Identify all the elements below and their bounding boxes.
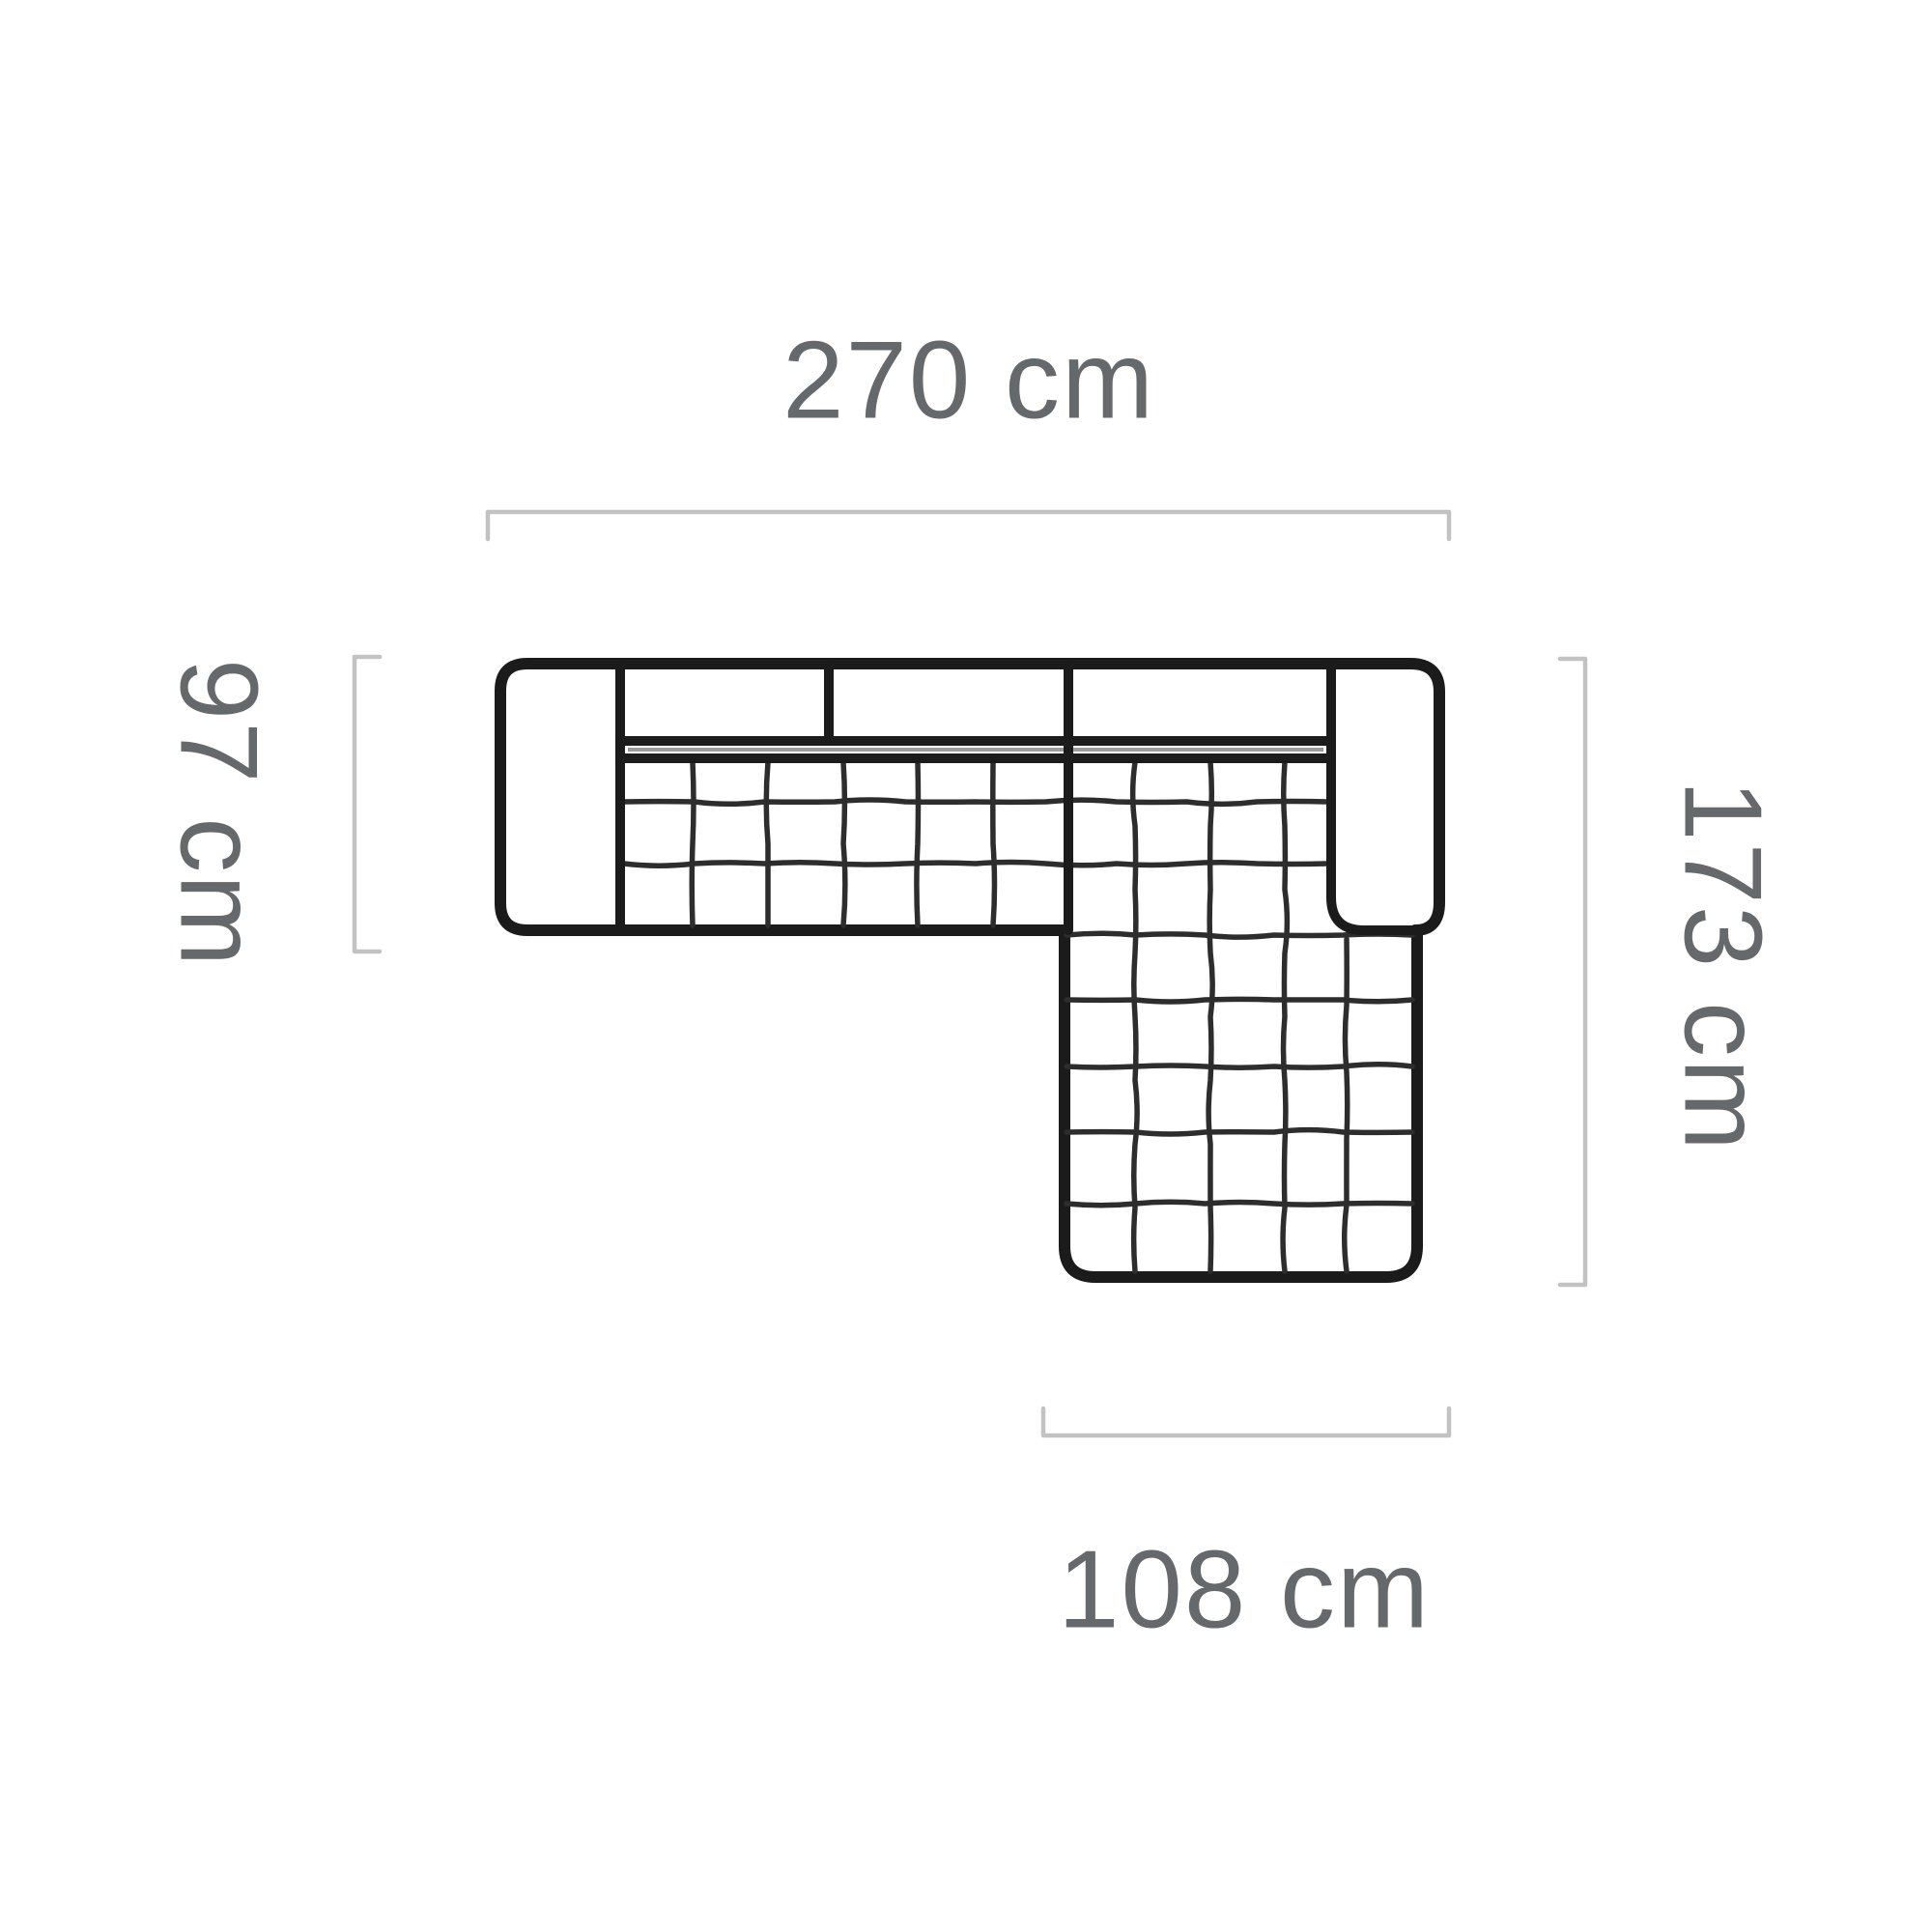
dimension-label-top-width: 270 cm bbox=[782, 320, 1155, 442]
diagram-background bbox=[0, 0, 1932, 1932]
quilt-line bbox=[1066, 1202, 1412, 1205]
quilt-line bbox=[993, 762, 995, 925]
quilt-line bbox=[843, 762, 845, 925]
quilt-line bbox=[1066, 1130, 1412, 1134]
quilt-line bbox=[1133, 762, 1137, 1271]
quilt-line bbox=[1345, 939, 1348, 1271]
quilt-line bbox=[1283, 762, 1287, 1271]
dimension-label-right-length: 173 cm bbox=[1662, 780, 1784, 1152]
quilt-line bbox=[1208, 762, 1212, 1271]
dimension-label-left-depth: 97 cm bbox=[157, 659, 280, 968]
quilt-line bbox=[1066, 999, 1412, 1002]
sofa-dimension-diagram: 270 cm 97 cm 173 cm 108 cm bbox=[0, 0, 1932, 1932]
diagram-canvas: 270 cm 97 cm 173 cm 108 cm bbox=[0, 0, 1932, 1932]
quilt-line bbox=[917, 762, 919, 925]
dimension-label-chaise-width: 108 cm bbox=[1058, 1529, 1431, 1652]
quilt-line bbox=[692, 762, 694, 925]
quilt-line bbox=[766, 762, 768, 925]
